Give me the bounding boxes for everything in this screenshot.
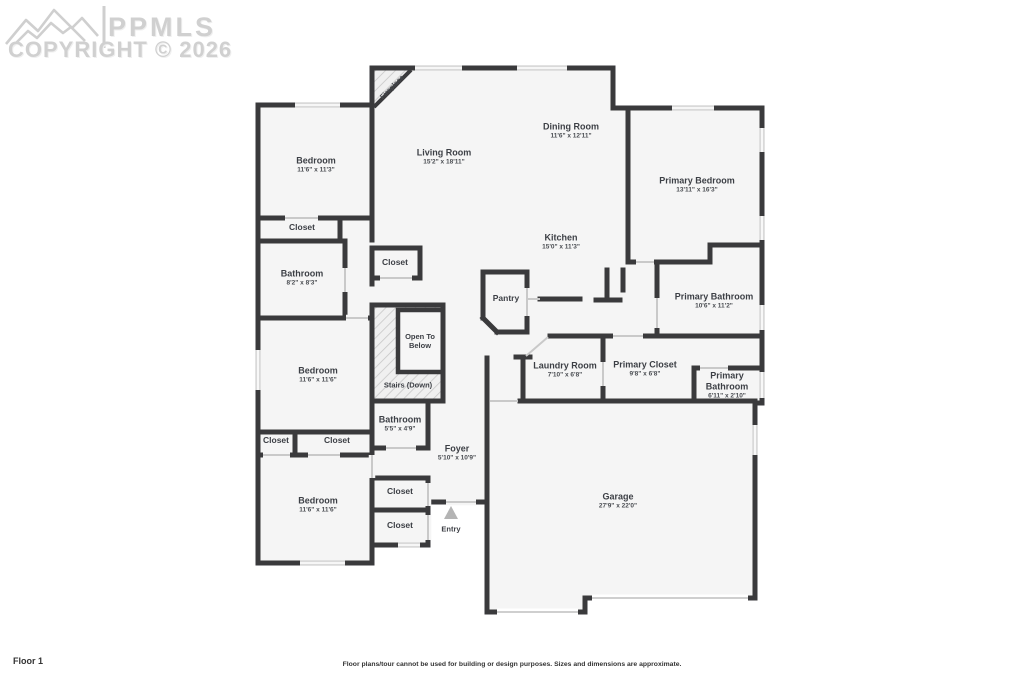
room-label-primary-closet: Primary Closet 9'8" x 6'8" [613, 360, 677, 379]
room-label-primary-bathroom: Primary Bathroom 10'6" x 11'2" [675, 292, 754, 311]
floorplan-svg [0, 0, 1024, 682]
room-label-closet-f: Closet [387, 520, 413, 530]
room-label-closet-a: Closet [289, 222, 315, 232]
floorplan-page: PPMLS COPYRIGHT © 2026 Bedroom 11'6" x 1… [0, 0, 1024, 682]
room-label-stairs-down: Stairs (Down) [384, 381, 432, 390]
room-label-entry: Entry [441, 525, 460, 534]
disclaimer-text: Floor plans/tour cannot be used for buil… [343, 661, 682, 668]
room-label-garage: Garage 27'9" x 22'0" [599, 492, 637, 511]
room-label-bathroom-top: Bathroom 8'2" x 8'3" [281, 269, 324, 288]
room-label-closet-e: Closet [387, 486, 413, 496]
room-label-kitchen: Kitchen 15'0" x 11'3" [542, 233, 580, 252]
room-label-bedroom-bottom: Bedroom 11'6" x 11'6" [298, 496, 338, 515]
room-label-closet-d: Closet [324, 435, 350, 445]
floor-label: Floor 1 [13, 656, 43, 666]
floorplan-footprint [258, 68, 762, 612]
room-label-dining-room: Dining Room 11'6" x 12'11" [543, 122, 599, 141]
room-label-closet-b: Closet [382, 257, 408, 267]
entry-arrow-icon [444, 506, 458, 519]
room-label-living-room: Living Room 15'2" x 18'11" [417, 148, 472, 167]
room-label-primary-bedroom: Primary Bedroom 13'11" x 16'3" [659, 176, 735, 195]
room-label-closet-c: Closet [263, 435, 289, 445]
room-label-open-to-below: Open To Below [399, 332, 441, 350]
watermark-copyright: COPYRIGHT © 2026 [8, 37, 232, 63]
room-label-pantry: Pantry [493, 293, 519, 303]
room-label-bathroom-2: Bathroom 5'5" x 4'9" [379, 415, 422, 434]
room-label-bedroom-mid: Bedroom 11'6" x 11'6" [298, 366, 338, 385]
room-label-primary-bathroom-2: Primary Bathroom 6'11" x 2'10" [696, 370, 758, 399]
room-label-laundry-room: Laundry Room 7'10" x 6'8" [533, 361, 597, 380]
room-label-bedroom-top: Bedroom 11'6" x 11'3" [296, 156, 336, 175]
room-label-foyer: Foyer 5'10" x 10'9" [438, 444, 476, 463]
